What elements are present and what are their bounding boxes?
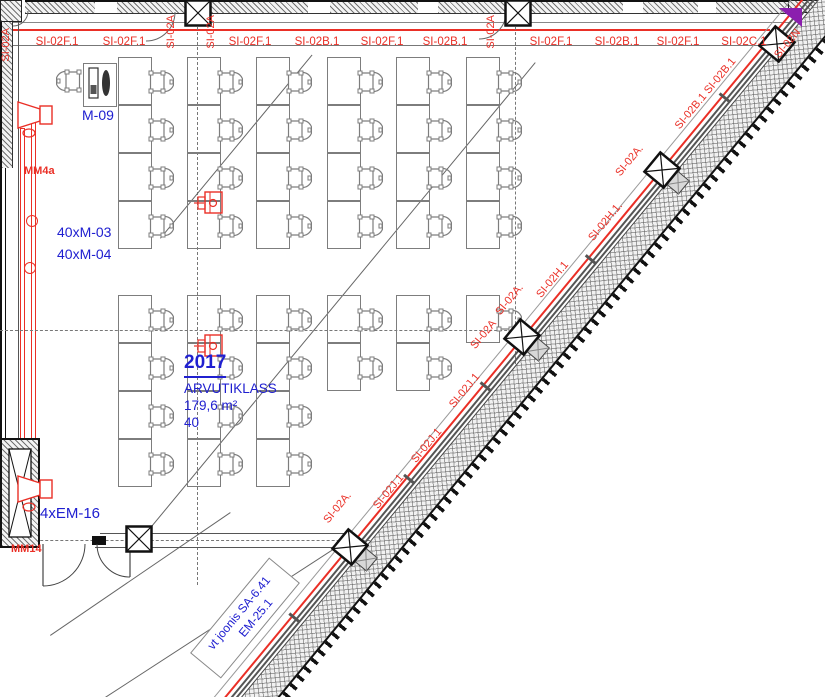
junction-box-icon [504,0,532,27]
chair-icon [496,165,522,191]
desk [256,439,290,487]
device-label: MM4a [24,166,55,177]
chair-icon [357,355,383,381]
desk [118,153,152,201]
left-wall-lower [0,168,6,440]
desk [396,153,430,201]
teacher-chair-icon [56,68,82,94]
cable-tray-label-diagonal: SI-02A. [322,490,354,525]
chair-icon [217,117,243,143]
desk [466,201,500,249]
cable-outlet-icon [24,262,36,274]
floor-plan-viewport: 2017 ARVUTIKLASS 179,6 m² 40 vt joonis S… [0,0,825,697]
cable-tray-label: SI-02F.1 [36,37,79,49]
chair-icon [148,69,174,95]
desk [396,343,430,391]
floor-outlet-box-icon [194,190,228,216]
device-label: MM14 [11,544,42,555]
desk [396,105,430,153]
left-wall-inner-line [18,22,19,438]
room-label: 2017 ARVUTIKLASS 179,6 m² 40 [184,351,277,431]
desk [466,57,500,105]
equipment-label: 40xM-04 [57,247,111,261]
desk [466,105,500,153]
chair-icon [286,403,312,429]
cable-tray-label: SI-02B.1 [423,37,468,49]
desk [327,201,361,249]
chair-icon [426,307,452,333]
chair-icon [496,213,522,239]
chair-icon [357,213,383,239]
cable-outlet-icon [26,215,38,227]
double-door-icon [38,541,138,591]
cable-tray-label: SI-02B.1 [295,37,340,49]
chair-icon [148,451,174,477]
desk [256,201,290,249]
junction-box-icon [125,525,153,553]
desk [327,153,361,201]
cable-tray-label-vertical: SI-02A [1,28,12,62]
chair-icon [217,213,243,239]
chair-icon [217,307,243,333]
chair-icon [286,213,312,239]
desk [327,57,361,105]
room-name: ARVUTIKLASS [184,381,277,398]
room-area: 179,6 m² [184,398,277,415]
desk [118,57,152,105]
desk [118,105,152,153]
cable-tray-label: SI-02F.1 [530,37,573,49]
desk [118,391,152,439]
wall-opening [308,2,330,13]
desk [187,439,221,487]
computer-icon [88,67,114,101]
top-wall-inner-line [0,22,790,23]
chair-icon [426,117,452,143]
chair-icon [148,403,174,429]
cable-tray-label: SI-02F.1 [103,37,146,49]
cable-tray-label: SI-02F.1 [361,37,404,49]
desk [256,295,290,343]
desk [118,343,152,391]
desk [327,105,361,153]
desk [327,343,361,391]
chair-icon [148,117,174,143]
desk [187,57,221,105]
chair-icon [148,213,174,239]
cable-tray-label-vertical: SI-02A [486,15,497,49]
wall-opening [623,2,643,13]
desk [466,153,500,201]
chair-icon [286,307,312,333]
chair-icon [286,69,312,95]
chair-icon [426,165,452,191]
chair-icon [426,69,452,95]
cable-tray-label: SI-02C.1 [721,37,766,49]
chair-icon [357,69,383,95]
desk [396,295,430,343]
chair-icon [286,355,312,381]
cable-tray-label-vertical: SI-02A [166,15,177,49]
chair-icon [496,117,522,143]
equipment-label: 4xEM-16 [40,506,100,521]
cable-tray-label: SI-02F.1 [657,37,700,49]
chair-icon [217,451,243,477]
cable-tray-label-vertical: SI-02A [206,15,217,49]
cable-duct [20,128,25,476]
cable-tray-label: SI-02B.1 [595,37,640,49]
door-swing-icon [12,10,30,28]
chair-icon [286,117,312,143]
cable-tray-label: SI-02F.1 [229,37,272,49]
wall-opening [418,2,438,13]
equipment-label: M-09 [82,108,114,122]
cable-tray-label-diagonal: SI-02A. [614,143,646,178]
chair-icon [148,307,174,333]
desk [118,295,152,343]
chair-icon [286,451,312,477]
desk [256,105,290,153]
chair-icon [148,355,174,381]
speaker-icon [16,100,58,138]
desk [327,295,361,343]
chair-icon [148,165,174,191]
desk [187,105,221,153]
desk [118,201,152,249]
chair-icon [357,165,383,191]
room-capacity: 40 [184,415,277,432]
chair-icon [496,69,522,95]
chair-icon [357,117,383,143]
desk [118,439,152,487]
chair-icon [217,165,243,191]
wall-opening [95,2,117,13]
room-number: 2017 [184,351,226,378]
desk [256,153,290,201]
chair-icon [426,213,452,239]
chair-icon [286,165,312,191]
desk [396,201,430,249]
chair-icon [426,355,452,381]
chair-icon [357,307,383,333]
equipment-label: 40xM-03 [57,225,111,239]
desk [396,57,430,105]
wall-opening [698,2,716,13]
cable-tray-line-top [0,29,770,31]
top-wall [25,2,788,14]
desk [256,57,290,105]
chair-icon [217,69,243,95]
